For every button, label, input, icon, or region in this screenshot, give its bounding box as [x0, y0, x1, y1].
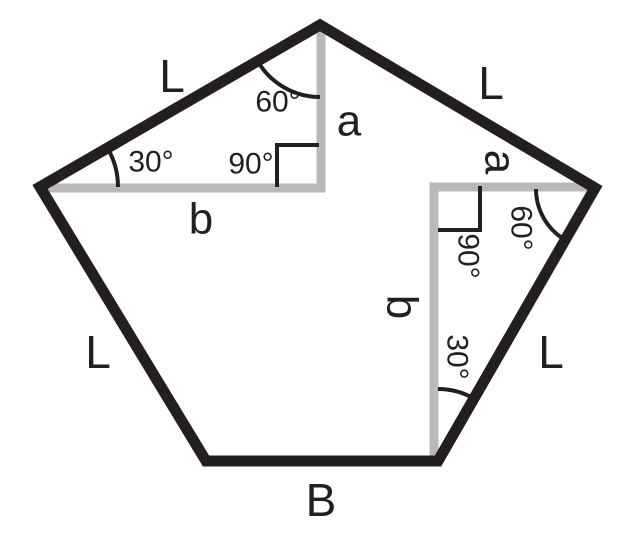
- arc-left-30-icon: [108, 148, 119, 187]
- angle-label-left-30: 30°: [128, 146, 173, 179]
- right-angle-mark-left-icon: [277, 145, 319, 187]
- pentagon-apothem-diagram: L L L L B a b a b 60° 30° 90° 60° 90° 30…: [0, 0, 636, 553]
- angle-label-right-90: 90°: [452, 233, 485, 278]
- angle-label-bottom-right-30: 30°: [441, 334, 474, 379]
- side-label-top-right: L: [478, 57, 504, 109]
- angle-label-top-60: 60°: [255, 86, 300, 119]
- arc-bottom-right-30-icon: [438, 389, 474, 399]
- side-label-bottom-left: L: [85, 326, 111, 378]
- right-angle-mark-right-icon: [438, 186, 480, 230]
- angle-label-right-60: 60°: [505, 205, 538, 250]
- apothem-label-top: a: [337, 97, 362, 146]
- half-base-label-left: b: [189, 195, 213, 244]
- half-base-label-right: b: [378, 295, 427, 319]
- angle-label-left-90: 90°: [228, 148, 273, 181]
- side-label-top-left: L: [159, 50, 185, 102]
- base-label: B: [306, 474, 337, 526]
- side-label-bottom-right: L: [538, 326, 564, 378]
- diagram-canvas: L L L L B a b a b 60° 30° 90° 60° 90° 30…: [0, 0, 636, 553]
- apothem-label-right: a: [476, 150, 525, 175]
- arc-right-60-icon: [536, 189, 566, 240]
